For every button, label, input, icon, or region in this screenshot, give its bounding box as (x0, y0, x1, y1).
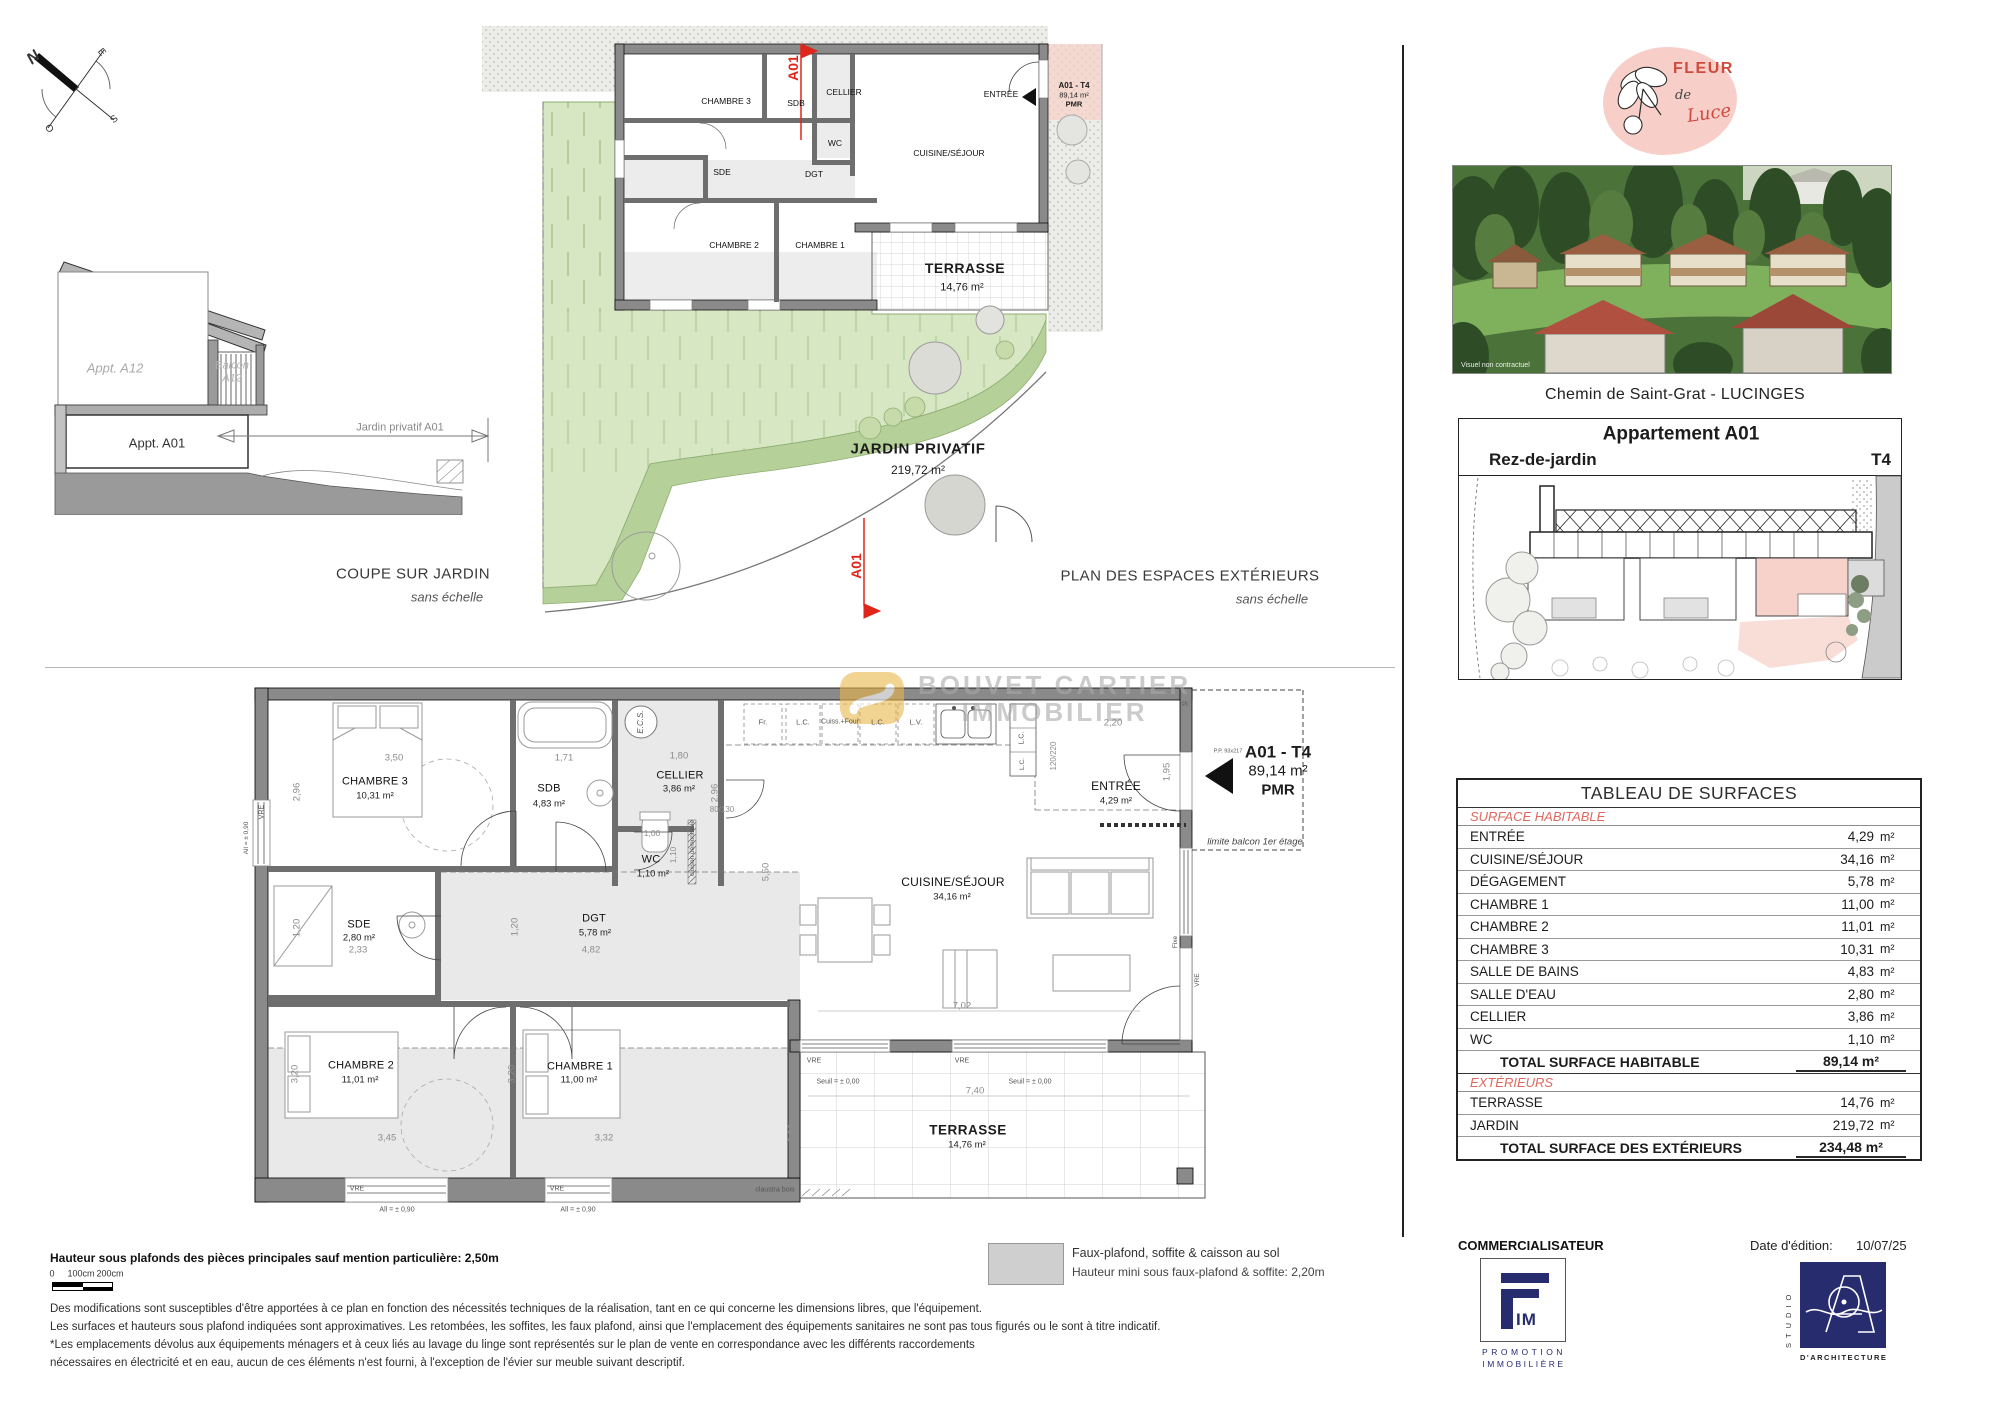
surfaces-table-title: TABLEAU DE SURFACES (1458, 780, 1920, 808)
table-row: CELLIER3,86m² (1458, 1006, 1920, 1029)
row-value: 34,16 (1804, 852, 1874, 867)
date-edition-value: 10/07/25 (1856, 1239, 1907, 1252)
row-unit: m² (1874, 852, 1920, 866)
dim-cellier-height: 2,96 (710, 784, 720, 803)
row-label: WC (1458, 1032, 1804, 1047)
room-label-cellier: CELLIER (656, 771, 703, 782)
seuil-label-1: Seuil = ± 0,00 (817, 1079, 860, 1086)
fim-mark-text: IM (1516, 1311, 1537, 1328)
total-habitable-row: TOTAL SURFACE HABITABLE89,14 m² (1458, 1051, 1920, 1074)
row-label: TERRASSE (1458, 1095, 1804, 1110)
table-row: CUISINE/SÉJOUR34,16m² (1458, 849, 1920, 872)
row-unit: m² (1874, 942, 1920, 956)
coupe-appt-a12-label: Appt. A12 (87, 362, 144, 375)
row-unit: m² (1874, 1032, 1920, 1046)
row-unit: m² (1874, 1118, 1920, 1132)
dim-kitchen-width: 2,20 (1104, 718, 1123, 728)
dim-c3-height: 2,96 (292, 783, 302, 802)
row-value: 10,31 (1804, 942, 1874, 957)
ext-room-entree: ENTRÉE (984, 90, 1018, 99)
fim-sub1: PROMOTION (1481, 1348, 1567, 1357)
room-area-chambre1: 11,00 m² (561, 1075, 598, 1085)
scale-bar (52, 1282, 113, 1291)
ext-unit-pmr: PMR (1066, 100, 1083, 108)
row-value: 2,80 (1804, 987, 1874, 1002)
allege-label-c1: All = ± 0,90 (560, 1207, 595, 1214)
dim-door-120-220: 120/220 (1050, 742, 1058, 771)
vre-label-right: VRE (1195, 973, 1202, 986)
legend-title: Faux-plafond, soffite & caisson au sol (1072, 1247, 1280, 1260)
row-value: 4,83 (1804, 964, 1874, 979)
ext-section-marker-bottom: A01 (849, 553, 863, 579)
table-row: TERRASSE14,76m² (1458, 1092, 1920, 1115)
main-unit-area: 89,14 m² (1248, 764, 1307, 779)
row-unit: m² (1874, 920, 1920, 934)
surfaces-section-habitable: SURFACE HABITABLE (1458, 808, 1920, 826)
table-row: DÉGAGEMENT5,78m² (1458, 871, 1920, 894)
surfaces-section-exterieurs: EXTÉRIEURS (1458, 1074, 1920, 1092)
disclaimer-line-2: Les surfaces et hauteurs sous plafond in… (50, 1322, 1160, 1334)
unit-title: Appartement A01 (1603, 425, 1760, 444)
cloison-label: cloison démontable (690, 820, 697, 876)
pp-label: P.P. 93x217 (1214, 749, 1243, 755)
logo-fleur-text: FLEUR (1673, 61, 1734, 77)
row-label: CHAMBRE 3 (1458, 942, 1804, 957)
row-unit: m² (1874, 875, 1920, 889)
photo-note-text: Visuel non contractuel (1461, 362, 1530, 369)
row-label: SALLE D'EAU (1458, 987, 1804, 1002)
ceiling-height-note: Hauteur sous plafonds des pièces princip… (50, 1252, 499, 1264)
oven-label: Cuiss.+Four (821, 719, 859, 726)
room-area-dgt: 5,78 m² (579, 928, 611, 938)
dim-terrasse-height: 2,00 (787, 1124, 797, 1143)
row-unit: m² (1874, 1010, 1920, 1024)
scale-tick-100: 100cm (67, 1270, 94, 1279)
coupe-jardin-dim-label: Jardin privatif A01 (356, 423, 443, 434)
row-value: 14,76 (1804, 1095, 1874, 1110)
fim-logo: IM (1480, 1258, 1566, 1342)
ext-room-sdb: SDB (787, 99, 804, 108)
allege-label-c2: All = ± 0,90 (379, 1207, 414, 1214)
compass-e: E (95, 46, 108, 58)
table-row: ENTRÉE4,29m² (1458, 826, 1920, 849)
fim-sub2: IMMOBILIÈRE (1481, 1360, 1567, 1369)
fridge-label: Fr. (759, 718, 768, 726)
row-label: ENTRÉE (1458, 829, 1804, 844)
pi-label: PI (1182, 702, 1188, 708)
vre-label-c2: VRE (350, 1186, 364, 1193)
row-unit: m² (1874, 965, 1920, 979)
total-value: 89,14 m² (1796, 1053, 1906, 1072)
room-label-terrasse: TERRASSE (929, 1123, 1007, 1137)
room-area-cuisine: 34,16 m² (933, 892, 971, 902)
date-edition-label: Date d'édition: (1750, 1239, 1833, 1252)
ext-unit-area: 89,14 m² (1059, 91, 1089, 99)
row-label: CELLIER (1458, 1009, 1804, 1024)
exterior-plan-caption: PLAN DES ESPACES EXTÉRIEURS (1061, 569, 1320, 584)
room-area-chambre3: 10,31 m² (356, 791, 394, 801)
row-unit: m² (1874, 1096, 1920, 1110)
lc-label-2: L.C. (871, 718, 885, 726)
total-label: TOTAL SURFACE DES EXTÉRIEURS (1458, 1140, 1796, 1156)
legend-sub: Hauteur mini sous faux-plafond & soffite… (1072, 1266, 1325, 1278)
unit-level: Rez-de-jardin (1489, 451, 1597, 468)
row-label: CHAMBRE 2 (1458, 919, 1804, 934)
disclaimer-line-1: Des modifications sont susceptibles d'êt… (50, 1304, 982, 1316)
main-unit-name: A01 - T4 (1245, 744, 1311, 761)
dim-terrasse-width: 7,40 (966, 1086, 985, 1096)
ext-terrasse-label: TERRASSE (925, 261, 1005, 275)
row-label: SALLE DE BAINS (1458, 964, 1804, 979)
dim-sde-height: 1,20 (292, 919, 302, 938)
disclaimer-line-3: *Les emplacements dévolus aux équipement… (50, 1340, 975, 1352)
total-label: TOTAL SURFACE HABITABLE (1458, 1054, 1796, 1070)
dim-sejour-height: 5,50 (761, 863, 771, 882)
ext-room-chambre3: CHAMBRE 3 (701, 97, 751, 106)
room-area-entree: 4,29 m² (1100, 796, 1132, 806)
dim-c3-width: 3,50 (385, 753, 404, 763)
row-unit: m² (1874, 830, 1920, 844)
dim-cellier-width: 1,80 (670, 751, 689, 761)
room-label-sdb: SDB (537, 784, 560, 795)
table-row: JARDIN219,72m² (1458, 1115, 1920, 1138)
ext-room-chambre1: CHAMBRE 1 (795, 241, 845, 250)
row-value: 219,72 (1804, 1118, 1874, 1133)
coupe-appt-a01-label: Appt. A01 (129, 437, 185, 450)
table-row: WC1,10m² (1458, 1029, 1920, 1052)
table-row: CHAMBRE 211,01m² (1458, 916, 1920, 939)
project-address: Chemin de Saint-Grat - LUCINGES (1545, 387, 1805, 403)
row-value: 11,00 (1804, 897, 1874, 912)
room-label-cuisine: CUISINE/SÉJOUR (901, 876, 1004, 888)
dim-entree-height: 1,95 (1162, 763, 1172, 782)
room-label-entree: ENTRÉE (1091, 780, 1141, 792)
logo-de-text: de (1675, 89, 1691, 102)
dim-c2-width: 3,45 (378, 1133, 397, 1143)
scale-tick-0: 0 (49, 1270, 54, 1279)
ext-terrasse-area: 14,76 m² (940, 283, 983, 294)
ext-room-dgt: DGT (805, 170, 823, 179)
project-photo: Visuel non contractuel (1452, 165, 1892, 374)
studio-sub-text: D'ARCHITECTURE (1800, 1354, 1886, 1362)
row-value: 5,78 (1804, 874, 1874, 889)
room-area-sdb: 4,83 m² (533, 799, 565, 809)
table-row: SALLE D'EAU2,80m² (1458, 984, 1920, 1007)
coupe-balcon-label-1: Balcon (215, 361, 249, 372)
dim-window-80-130: 80/130 (710, 806, 734, 814)
limite-balcon-label: limite balcon 1er étage (1207, 837, 1303, 847)
main-unit-pmr: PMR (1261, 783, 1294, 798)
ext-jardin-label: JARDIN PRIVATIF (850, 442, 985, 457)
watermark-line2: IMMOBILIER (918, 699, 1191, 726)
claustra-label: claustra bois (755, 1187, 794, 1194)
row-value: 1,10 (1804, 1032, 1874, 1047)
dim-sde-width: 2,33 (349, 945, 368, 955)
room-area-sde: 2,80 m² (343, 933, 375, 943)
vertical-divider (1402, 45, 1404, 1237)
lc-label-4: L.C. (1020, 758, 1027, 770)
fleur-de-luce-logo: FLEUR de Luce (1603, 47, 1753, 159)
exterior-plan-drawing (455, 22, 1115, 627)
vre-label-left: VRE (259, 805, 266, 819)
dim-wc-height: 1,10 (669, 847, 678, 864)
compass-n: N (25, 47, 44, 68)
row-value: 11,01 (1804, 919, 1874, 934)
row-value: 4,29 (1804, 829, 1874, 844)
row-value: 3,86 (1804, 1009, 1874, 1024)
row-label: CUISINE/SÉJOUR (1458, 852, 1804, 867)
room-area-wc: 1,10 m² (637, 869, 669, 879)
ext-jardin-area: 219,72 m² (891, 464, 945, 476)
room-label-chambre3: CHAMBRE 3 (342, 777, 408, 788)
ext-room-sde: SDE (713, 168, 730, 177)
dim-sejour-width: 7,02 (953, 1001, 972, 1011)
coupe-balcon-label-2: A12 (222, 374, 242, 385)
site-plan-drawing (1459, 475, 1901, 679)
row-label: CHAMBRE 1 (1458, 897, 1804, 912)
unit-box-header: Appartement A01 Rez-de-jardin T4 (1459, 419, 1901, 476)
dim-c1-width: 3,32 (595, 1133, 614, 1143)
lc-label-3: L.C. (1019, 732, 1026, 745)
vre-label-c1: VRE (550, 1186, 564, 1193)
room-area-chambre2: 11,01 m² (342, 1075, 379, 1085)
compass-s: S (108, 113, 120, 126)
watermark-line1: BOUVET CARTIER (918, 672, 1191, 699)
ext-room-chambre2: CHAMBRE 2 (709, 241, 759, 250)
room-label-chambre1: CHAMBRE 1 (547, 1062, 613, 1073)
row-unit: m² (1874, 897, 1920, 911)
dim-c2-height: 3,20 (290, 1065, 300, 1084)
dim-wc-width: 1,00 (644, 829, 661, 838)
exterior-plan-caption-sub: sans échelle (1236, 593, 1308, 606)
commercialisateur-label: COMMERCIALISATEUR (1458, 1239, 1604, 1252)
lc-label-1: L.C. (796, 718, 810, 726)
studio-architecture-logo (1800, 1262, 1886, 1348)
disclaimer-line-4: nécessaires en électricité et en eau, au… (50, 1358, 685, 1370)
lv-label: L.V. (910, 718, 923, 726)
row-label: JARDIN (1458, 1118, 1804, 1133)
total-ext-row: TOTAL SURFACE DES EXTÉRIEURS234,48 m² (1458, 1137, 1920, 1159)
room-area-terrasse: 14,76 m² (948, 1140, 986, 1150)
room-label-dgt: DGT (582, 914, 606, 925)
allege-label-left: All = ± 0,90 (244, 822, 251, 855)
ext-room-cellier: CELLIER (826, 88, 861, 97)
room-label-wc: WC (642, 855, 661, 866)
row-unit: m² (1874, 987, 1920, 1001)
room-label-sde: SDE (347, 920, 370, 931)
seuil-label-2: Seuil = ± 0,00 (1009, 1079, 1052, 1086)
table-row: SALLE DE BAINS4,83m² (1458, 961, 1920, 984)
ext-room-cuisine: CUISINE/SÉJOUR (913, 149, 984, 158)
compass-o: O (42, 122, 56, 135)
table-row: CHAMBRE 310,31m² (1458, 939, 1920, 962)
dim-dgt-width: 4,82 (582, 945, 601, 955)
ext-section-marker-top: A01 (786, 55, 800, 81)
dim-sdb-width: 1,71 (555, 753, 574, 763)
row-label: DÉGAGEMENT (1458, 874, 1804, 889)
room-area-cellier: 3,86 m² (663, 784, 695, 794)
compass-icon: N E S O (25, 38, 135, 143)
surfaces-table: TABLEAU DE SURFACES SURFACE HABITABLE EN… (1456, 778, 1922, 1161)
ecs-label: E.C.S. (637, 710, 645, 733)
dim-c1-height: 3,20 (507, 1065, 517, 1084)
legend-swatch (988, 1243, 1064, 1285)
scale-tick-200: 200cm (96, 1270, 123, 1279)
watermark: BOUVET CARTIER IMMOBILIER (840, 672, 1191, 727)
vre-label-sejour2: VRE (955, 1058, 969, 1065)
studio-vertical-text: STUDIO (1784, 1262, 1793, 1348)
room-label-chambre2: CHAMBRE 2 (328, 1061, 394, 1072)
dim-dgt-height: 1,20 (510, 918, 520, 937)
ext-unit-name: A01 - T4 (1058, 82, 1089, 90)
fixe-label: Fixe (1173, 936, 1180, 948)
ext-room-wc: WC (828, 139, 842, 148)
table-row: CHAMBRE 111,00m² (1458, 894, 1920, 917)
total-value: 234,48 m² (1796, 1139, 1906, 1158)
unit-type: T4 (1871, 451, 1891, 468)
vre-label-sejour1: VRE (807, 1058, 821, 1065)
